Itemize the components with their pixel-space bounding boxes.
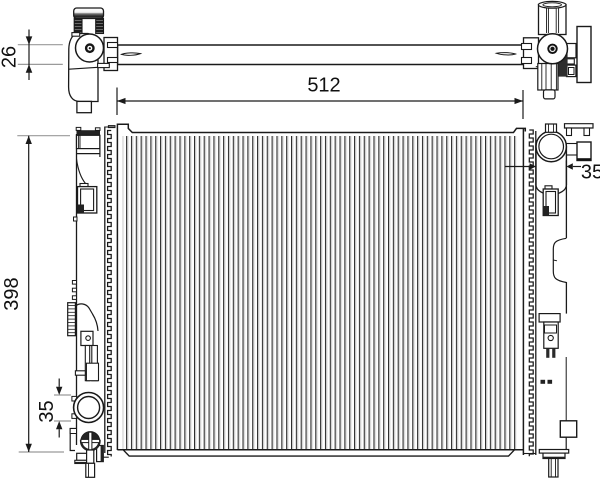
svg-text:26: 26 (0, 46, 21, 68)
svg-text:35: 35 (36, 400, 58, 422)
svg-text:398: 398 (1, 277, 23, 310)
svg-text:35: 35 (581, 161, 600, 183)
svg-text:512: 512 (307, 75, 340, 97)
